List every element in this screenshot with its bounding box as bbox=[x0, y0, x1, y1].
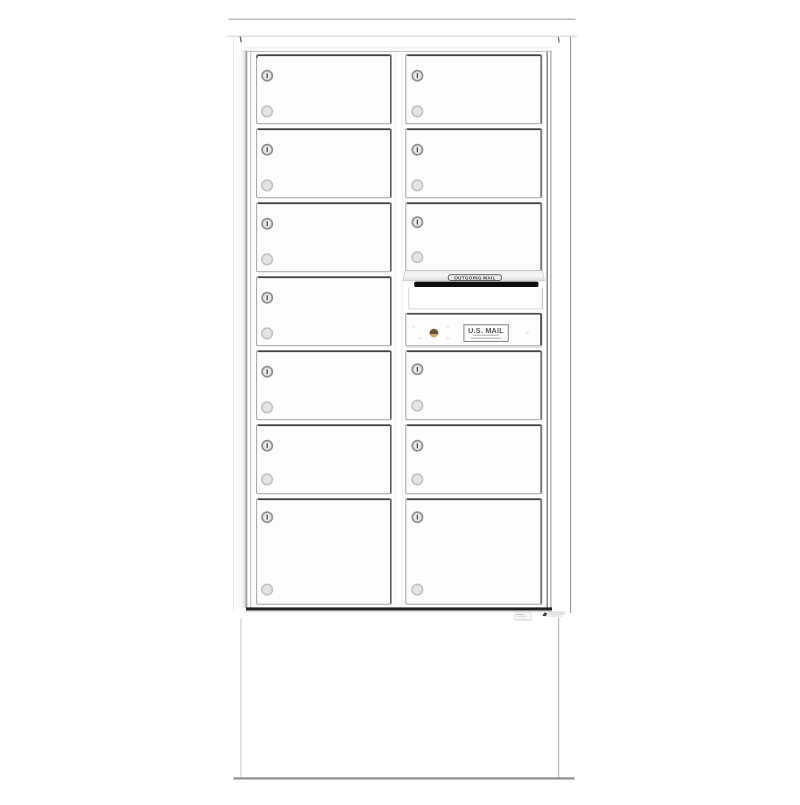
svg-text:OUTGOING MAIL: OUTGOING MAIL bbox=[454, 275, 495, 280]
svg-text:U.S. MAIL: U.S. MAIL bbox=[468, 326, 504, 335]
